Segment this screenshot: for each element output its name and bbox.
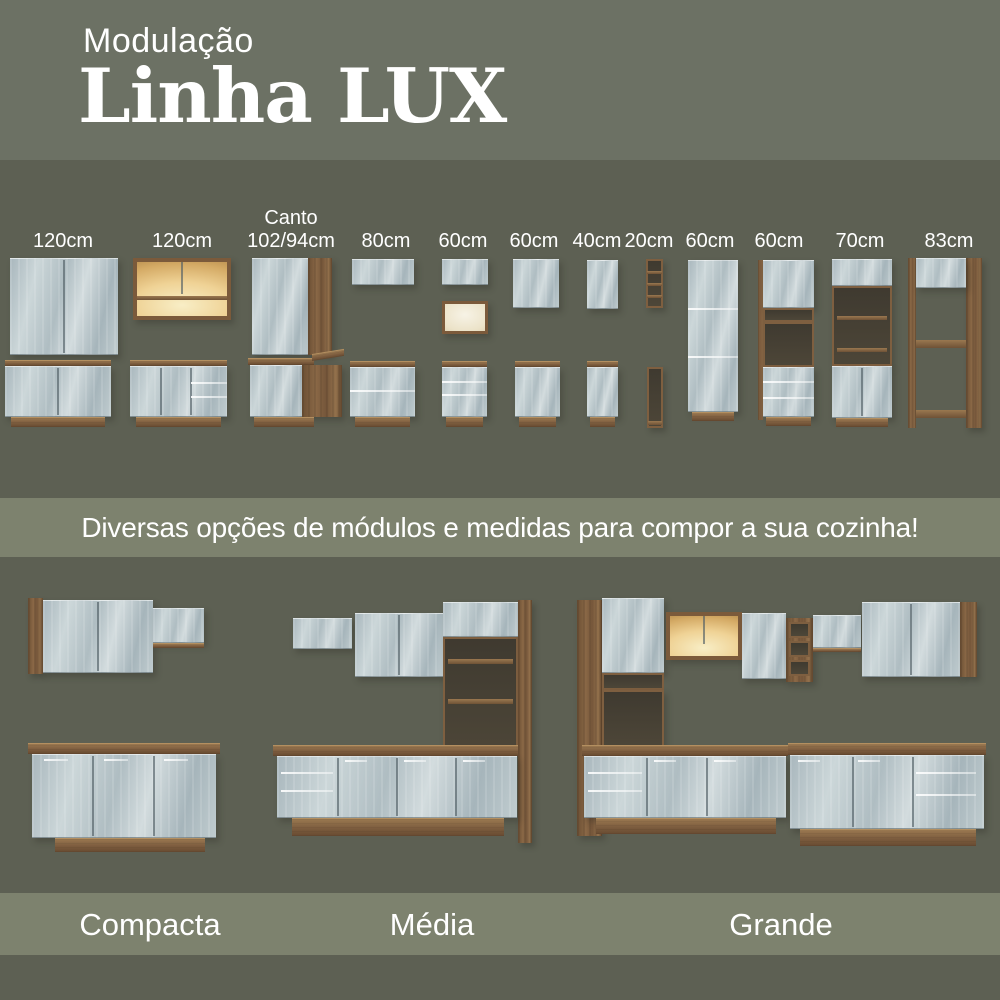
- module-label-20: 20cm: [625, 231, 674, 251]
- shelf: [647, 271, 662, 274]
- module-80-upper-door: [352, 259, 414, 285]
- media-upper-left-door: [293, 618, 352, 649]
- drawer-gap: [916, 772, 976, 774]
- drawer-gap: [442, 394, 487, 396]
- tower-top-door: [763, 260, 814, 308]
- media-tower-side: [518, 600, 532, 843]
- plinth: [836, 418, 888, 427]
- handle: [714, 760, 736, 762]
- door-gap: [57, 368, 59, 415]
- door-gap: [706, 758, 708, 816]
- door-gap: [646, 758, 648, 816]
- handle: [798, 760, 820, 762]
- door-gap: [181, 262, 183, 294]
- tower-open: [763, 322, 814, 367]
- handle: [404, 760, 426, 762]
- drawer-gap: [191, 396, 227, 398]
- module-label-120a: 120cm: [33, 231, 93, 251]
- handle: [345, 760, 367, 762]
- shelf: [448, 699, 513, 704]
- graphics-layer: [0, 0, 1000, 1000]
- module-60-upper-door: [442, 259, 488, 285]
- base-40-door: [587, 367, 618, 417]
- door-gap: [190, 368, 192, 415]
- base-60-drawers: [442, 367, 487, 417]
- module-label-40: 40cm: [573, 231, 622, 251]
- tower-top-door: [832, 259, 892, 286]
- door-gap: [97, 602, 99, 671]
- handle: [164, 759, 188, 761]
- grande-upper-door: [742, 613, 786, 679]
- shelf: [648, 421, 662, 425]
- door-gap: [92, 756, 94, 836]
- tower-drawers: [763, 367, 814, 417]
- counter: [582, 745, 788, 756]
- base-80: [350, 367, 415, 417]
- plinth: [766, 417, 811, 426]
- door-gap: [396, 758, 398, 816]
- door-gap: [398, 615, 400, 675]
- base-120-mixed: [130, 366, 227, 417]
- door-gap: [861, 368, 863, 416]
- drawer-gap: [588, 772, 642, 774]
- fridge-top-door: [916, 258, 966, 288]
- shelf: [647, 283, 662, 286]
- compacta-base-doors: [32, 754, 216, 838]
- kitchen-label-grande: Grande: [729, 907, 832, 943]
- grande-upper-right-small: [813, 615, 861, 648]
- handle: [104, 759, 128, 761]
- kitchen-label-media: Média: [390, 907, 474, 943]
- door-gap: [63, 260, 65, 353]
- grande-tower-slot: [602, 673, 664, 690]
- grande-tower-open: [602, 690, 664, 747]
- counter: [788, 743, 986, 755]
- plinth: [292, 818, 504, 836]
- niche: [789, 660, 810, 676]
- tower-shelves: [832, 286, 892, 366]
- door-gap: [912, 757, 914, 827]
- compacta-upper-right-trim: [153, 643, 204, 648]
- base-canto-door: [250, 365, 302, 417]
- door-gap: [703, 616, 705, 644]
- grande-upper-end-panel: [960, 602, 977, 677]
- plinth: [11, 417, 105, 427]
- drawer-gap: [588, 790, 642, 792]
- drawer-gap: [281, 772, 333, 774]
- handle: [858, 760, 880, 762]
- shelf: [837, 316, 887, 320]
- shelf: [448, 659, 513, 664]
- plinth: [692, 412, 734, 421]
- module-canto-upper-door: [252, 258, 308, 355]
- drawer-gap: [442, 381, 487, 383]
- module-60-nicho: [442, 301, 488, 334]
- plinth: [254, 417, 314, 427]
- module-canto-upper-side: [308, 258, 332, 355]
- drawer-gap: [350, 390, 415, 392]
- door-gap: [852, 757, 854, 827]
- fridge-frame-side: [966, 258, 982, 428]
- module-label-120b: 120cm: [152, 231, 212, 251]
- handle: [463, 760, 485, 762]
- drawer-gap: [916, 794, 976, 796]
- module-label-60b: 60cm: [510, 231, 559, 251]
- module-label-70: 70cm: [836, 231, 885, 251]
- door-gap-line: [688, 308, 738, 310]
- grande-tower-door: [602, 598, 664, 673]
- drawer-gap: [763, 397, 814, 399]
- page: Modulação Linha LUX Diversas opções de m…: [0, 0, 1000, 1000]
- door-gap: [337, 758, 339, 816]
- module-label-60d: 60cm: [755, 231, 804, 251]
- module-label-60c: 60cm: [686, 231, 735, 251]
- plinth: [355, 417, 410, 427]
- grande-base-right: [790, 755, 984, 829]
- plinth: [596, 818, 776, 834]
- door-gap: [910, 604, 912, 675]
- module-label-83: 83cm: [925, 231, 974, 251]
- door-gap: [153, 756, 155, 836]
- plinth: [446, 417, 483, 427]
- module-label-80: 80cm: [362, 231, 411, 251]
- media-tower-open: [443, 637, 518, 755]
- counter: [248, 358, 314, 365]
- fridge-shelf: [916, 410, 966, 418]
- compacta-upper-side: [28, 598, 43, 674]
- niche: [789, 622, 810, 638]
- kitchen-label-compacta: Compacta: [79, 907, 220, 943]
- counter: [28, 743, 220, 754]
- plinth: [55, 838, 205, 852]
- shelf: [837, 348, 887, 352]
- counter: [273, 745, 518, 756]
- plinth: [519, 417, 556, 427]
- niche: [789, 641, 810, 657]
- module-label-60a: 60cm: [439, 231, 488, 251]
- lit-shelf: [137, 296, 227, 300]
- handle: [654, 760, 676, 762]
- handle: [44, 759, 68, 761]
- module-40-upper-door: [587, 260, 618, 309]
- door-gap-line: [688, 356, 738, 358]
- door-gap: [455, 758, 457, 816]
- drawer-gap: [191, 382, 227, 384]
- base-60-door: [515, 367, 560, 417]
- fridge-shelf: [916, 340, 966, 348]
- fridge-frame-left: [908, 258, 916, 428]
- plinth: [590, 417, 615, 427]
- trim: [813, 648, 861, 652]
- drawer-gap: [281, 790, 333, 792]
- shelf: [647, 295, 662, 298]
- module-60-pantry-doors: [688, 260, 738, 412]
- compacta-upper-right-door: [153, 608, 204, 643]
- plinth: [800, 829, 976, 846]
- tower-slot: [763, 308, 814, 322]
- media-tower-door: [443, 602, 518, 637]
- module-label-canto-line1: Canto: [264, 208, 317, 228]
- module-60-upper-tall-door: [513, 259, 559, 308]
- grande-base-left: [584, 756, 786, 818]
- module-label-canto-line2: 102/94cm: [247, 231, 335, 251]
- drawer-gap: [763, 381, 814, 383]
- door-gap: [160, 368, 162, 415]
- base-canto-wood: [302, 365, 342, 417]
- plinth: [136, 417, 221, 427]
- module-20-shelf-lower: [647, 367, 663, 428]
